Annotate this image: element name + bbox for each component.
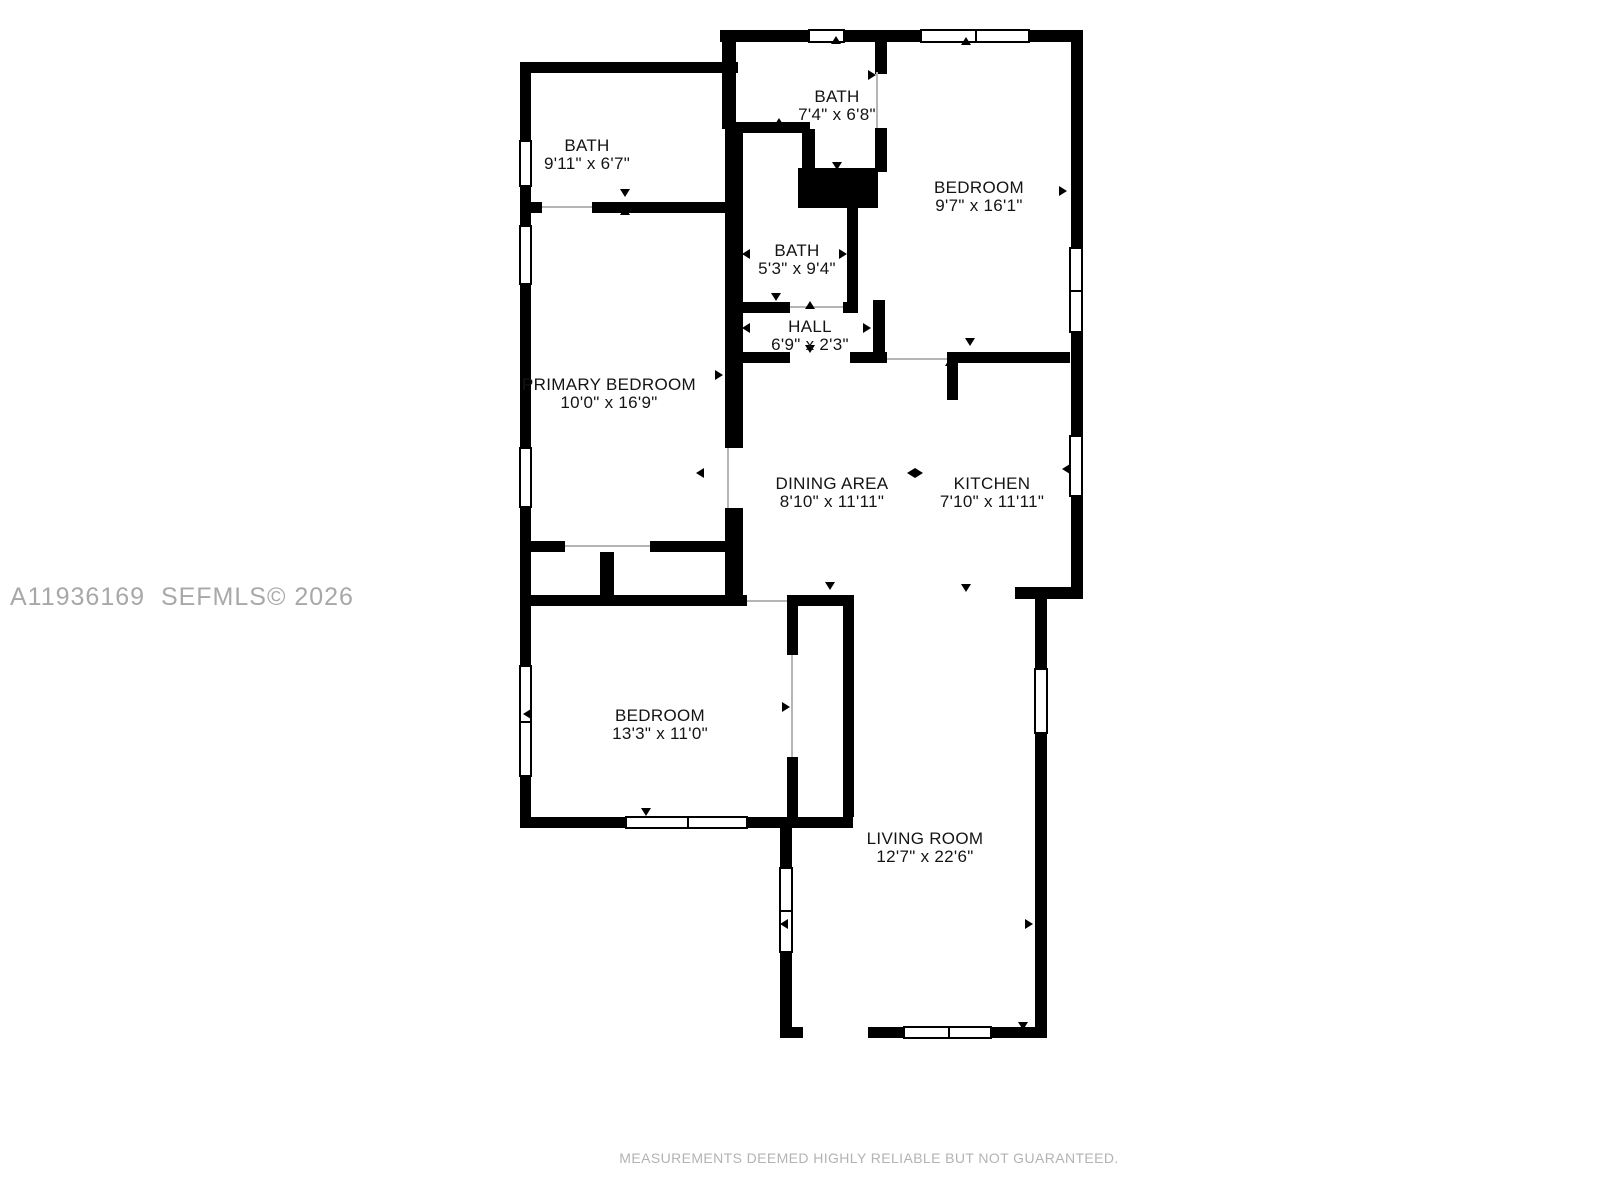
door-arrow-right-icon (1059, 186, 1067, 196)
door-arrow-left-icon (742, 249, 750, 259)
disclaimer-text: MEASUREMENTS DEEMED HIGHLY RELIABLE BUT … (619, 1150, 1118, 1166)
wall (722, 30, 736, 129)
window (519, 225, 532, 285)
wall (875, 128, 887, 172)
wall (843, 302, 858, 313)
door-arrow-down-icon (771, 293, 781, 301)
door-arrow-right-icon (782, 702, 790, 712)
window (920, 29, 1030, 43)
wall (1035, 598, 1047, 1038)
room-label-bedroom-2: BEDROOM 13'3" x 11'0" (612, 707, 708, 742)
floor-plan: BATH 9'11" x 6'7" BATH 7'4" x 6'8" BEDRO… (0, 0, 1600, 1200)
door-line (727, 448, 729, 508)
door-arrow-up-icon (650, 598, 660, 606)
room-label-dining-area: DINING AREA 8'10" x 11'11" (776, 475, 889, 510)
room-label-bath-2: BATH 7'4" x 6'8" (798, 88, 876, 123)
door-arrow-down-icon (620, 189, 630, 197)
wall (868, 1027, 903, 1038)
room-name: BEDROOM (612, 707, 708, 724)
wall (743, 302, 790, 313)
door-arrow-left-icon (742, 323, 750, 333)
door-arrow-up-icon (805, 301, 815, 309)
wall (798, 168, 878, 208)
door-arrow-left-icon (1062, 464, 1070, 474)
door-arrow-up-icon (831, 36, 841, 44)
room-name: PRIMARY BEDROOM (522, 376, 696, 393)
room-dimensions: 8'10" x 11'11" (776, 493, 889, 510)
wall (520, 202, 542, 213)
wall (787, 595, 853, 606)
room-label-kitchen: KITCHEN 7'10" x 11'11" (940, 475, 1044, 510)
door-arrow-up-icon (620, 207, 630, 215)
door-arrow-right-icon (839, 249, 847, 259)
opening-line (747, 600, 787, 602)
room-dimensions: 6'9" x 2'3" (771, 336, 849, 353)
closet-door-line (565, 545, 650, 547)
window (625, 816, 748, 829)
wall (843, 595, 854, 817)
door-arrow-right-icon (915, 468, 923, 478)
wall (847, 208, 858, 303)
wall (520, 595, 747, 606)
door-arrow-left-icon (523, 709, 531, 719)
wall (520, 817, 625, 828)
door-arrow-right-icon (1025, 919, 1033, 929)
wall (600, 552, 614, 598)
room-name: BATH (758, 242, 836, 259)
wall (875, 42, 887, 74)
room-label-primary-bedroom: PRIMARY BEDROOM 10'0" x 16'9" (522, 376, 696, 411)
mls-watermark: A11936169 SEFMLS© 2026 (10, 583, 354, 612)
room-dimensions: 5'3" x 9'4" (758, 260, 836, 277)
wall (850, 352, 887, 363)
door-arrow-down-icon (1018, 1022, 1028, 1030)
door-arrow-up-icon (1016, 591, 1026, 599)
opening-line (542, 206, 592, 208)
room-name: HALL (771, 318, 849, 335)
room-name: KITCHEN (940, 475, 1044, 492)
wall (725, 508, 743, 605)
room-dimensions: 9'11" x 6'7" (544, 155, 630, 172)
window (1069, 247, 1083, 333)
room-dimensions: 9'7" x 16'1" (934, 197, 1024, 214)
door-arrow-up-icon (622, 64, 632, 72)
door-arrow-down-icon (825, 582, 835, 590)
room-label-living-room: LIVING ROOM 12'7" x 22'6" (867, 830, 984, 865)
wall (650, 541, 743, 552)
door-line (791, 655, 793, 757)
window (903, 1026, 992, 1039)
wall (792, 817, 853, 828)
door-arrow-down-icon (965, 338, 975, 346)
door-arrow-up-icon (774, 118, 784, 126)
room-dimensions: 13'3" x 11'0" (612, 725, 708, 742)
room-name: BATH (544, 137, 630, 154)
door-arrow-left-icon (696, 468, 704, 478)
wall (802, 129, 815, 170)
room-dimensions: 7'10" x 11'11" (940, 493, 1044, 510)
wall (725, 129, 743, 448)
door-arrow-up-icon (961, 37, 971, 45)
window (519, 665, 532, 777)
room-name: DINING AREA (776, 475, 889, 492)
door-arrow-left-icon (780, 919, 788, 929)
room-label-hall: HALL 6'9" x 2'3" (771, 318, 849, 353)
room-dimensions: 12'7" x 22'6" (867, 848, 984, 865)
window (519, 140, 532, 187)
door-arrow-down-icon (961, 584, 971, 592)
room-dimensions: 7'4" x 6'8" (798, 106, 876, 123)
door-arrow-right-icon (868, 70, 876, 80)
window (519, 447, 532, 508)
window (1069, 435, 1083, 497)
door-line (876, 72, 878, 128)
wall (947, 352, 1070, 363)
wall (592, 202, 738, 213)
window (779, 867, 793, 953)
room-dimensions: 10'0" x 16'9" (522, 394, 696, 411)
room-label-bath-3: BATH 5'3" x 9'4" (758, 242, 836, 277)
opening-line (790, 306, 843, 308)
room-name: BEDROOM (934, 179, 1024, 196)
room-name: LIVING ROOM (867, 830, 984, 847)
wall (520, 541, 565, 552)
opening-line (887, 358, 947, 360)
door-arrow-left-icon (523, 126, 531, 136)
door-arrow-down-icon (641, 808, 651, 816)
window (1034, 668, 1048, 734)
door-arrow-right-icon (715, 370, 723, 380)
door-arrow-down-icon (832, 162, 842, 170)
door-arrow-up-icon (945, 358, 955, 366)
room-label-bedroom-1: BEDROOM 9'7" x 16'1" (934, 179, 1024, 214)
door-arrow-right-icon (863, 323, 871, 333)
door-arrow-left-icon (907, 468, 915, 478)
room-label-bath-1: BATH 9'11" x 6'7" (544, 137, 630, 172)
room-name: BATH (798, 88, 876, 105)
